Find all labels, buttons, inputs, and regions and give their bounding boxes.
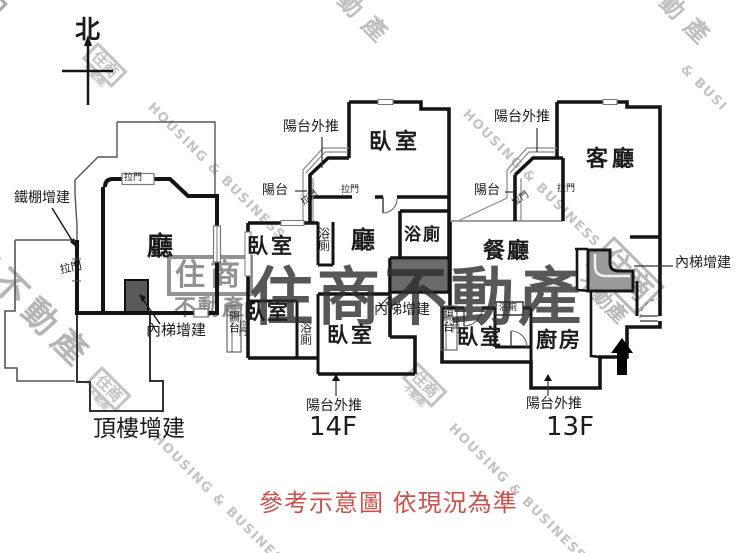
iron-shed-label: 鐵棚增建 [14, 191, 70, 206]
hall-label: 廳 [147, 234, 173, 261]
bedroom-label: 臥室 [247, 235, 295, 257]
f13-plan-title: 13F [546, 414, 594, 441]
bedroom-label: 臥室 [244, 301, 290, 323]
bedroom-label: 臥室 [457, 326, 503, 348]
balcony-pushout-label: 陽台外推 [494, 110, 550, 125]
dining-room-label: 餐廳 [483, 240, 531, 263]
hall-label: 廳 [351, 228, 375, 253]
sliding-door-label: 拉門 [124, 174, 142, 183]
disclaimer-text: 參考示意圖 依現況為準 [259, 483, 518, 518]
balcony-label: 陽台 [262, 184, 288, 198]
rooftop-plan-title: 頂樓增建 [93, 417, 185, 441]
bath-label: 浴廁 [317, 227, 330, 251]
inner-stairs-label: 內梯增建 [675, 256, 731, 271]
balcony-pushout-label: 陽台外推 [526, 397, 582, 412]
f14-plan-title: 14F [309, 414, 357, 441]
bedroom-label: 臥室 [327, 324, 375, 346]
balcony-pushout-label: 陽台外推 [283, 120, 339, 135]
sliding-door-label: 拉門 [341, 186, 359, 195]
bath-label: 浴廁 [299, 321, 312, 345]
living-room-label: 客廳 [586, 148, 638, 171]
kitchen-label: 廚房 [536, 329, 582, 351]
floorplan-image: 住商 不動產 動產 動產 商不動產 住商 不動產 住商 不動產 住商 不動產 住… [0, 0, 737, 553]
bath-label: 浴廁 [404, 227, 442, 245]
rooftop-plan [5, 122, 221, 411]
compass-icon [62, 35, 113, 105]
inner-stairs-label: 內梯增建 [146, 323, 206, 339]
rooftop-stairs [125, 280, 148, 312]
bath-label: 浴廁 [499, 304, 517, 313]
sliding-door-label: 拉門 [557, 185, 575, 194]
inner-stairs-label: 內梯增建 [374, 303, 430, 318]
bedroom-label: 臥室 [369, 131, 421, 154]
compass-north-label: 北 [75, 17, 100, 43]
balcony-label: 陽台 [474, 184, 500, 198]
